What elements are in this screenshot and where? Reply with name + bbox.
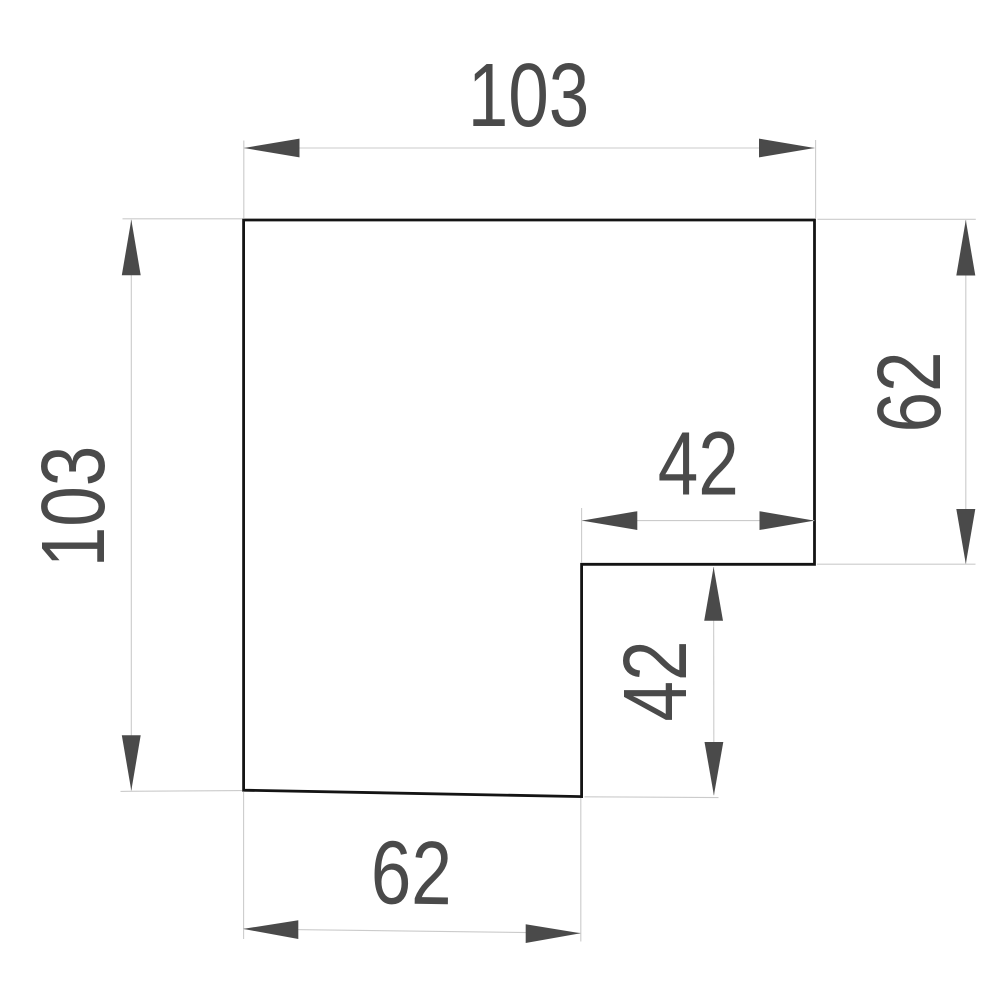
svg-text:42: 42 bbox=[606, 640, 706, 721]
svg-text:62: 62 bbox=[860, 351, 960, 432]
svg-text:103: 103 bbox=[24, 446, 124, 568]
svg-text:62: 62 bbox=[370, 823, 452, 924]
svg-text:42: 42 bbox=[658, 414, 739, 514]
svg-text:103: 103 bbox=[468, 46, 590, 146]
